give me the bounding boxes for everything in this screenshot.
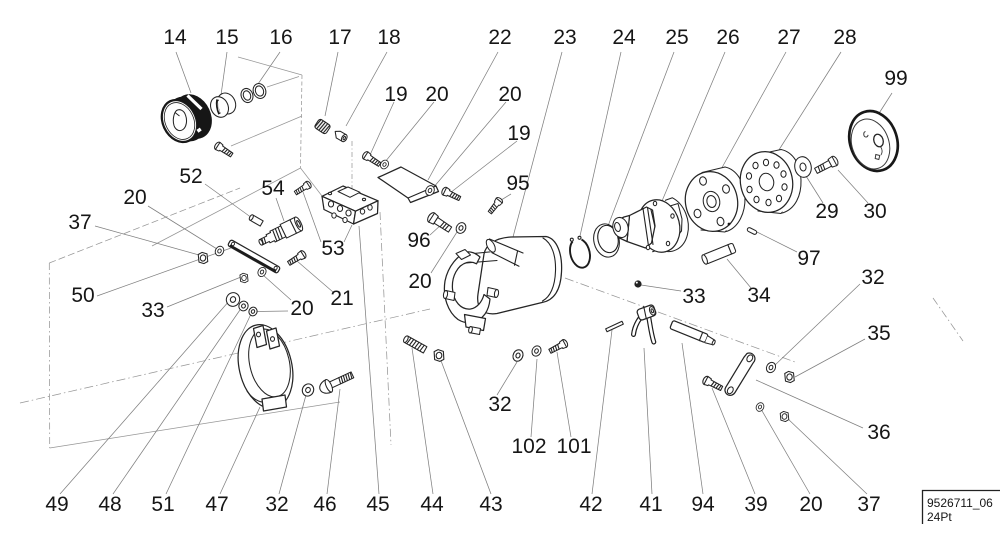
svg-text:32: 32 [861, 266, 884, 289]
svg-text:99: 99 [884, 67, 907, 90]
svg-text:37: 37 [857, 493, 880, 516]
svg-text:23: 23 [553, 26, 576, 49]
svg-text:18: 18 [377, 26, 400, 49]
svg-text:29: 29 [815, 200, 838, 223]
svg-text:54: 54 [261, 177, 285, 200]
svg-text:35: 35 [867, 322, 890, 345]
svg-text:102: 102 [511, 435, 546, 458]
svg-text:37: 37 [68, 211, 91, 234]
svg-text:51: 51 [151, 493, 174, 516]
svg-text:33: 33 [682, 285, 705, 308]
svg-text:26: 26 [716, 26, 739, 49]
svg-text:16: 16 [269, 26, 292, 49]
svg-text:33: 33 [141, 299, 164, 322]
svg-text:44: 44 [420, 493, 444, 516]
svg-text:39: 39 [744, 493, 767, 516]
svg-text:28: 28 [833, 26, 856, 49]
svg-text:49: 49 [45, 493, 68, 516]
svg-text:48: 48 [98, 493, 121, 516]
svg-text:17: 17 [328, 26, 351, 49]
svg-text:20: 20 [425, 83, 448, 106]
svg-text:20: 20 [498, 83, 521, 106]
svg-text:36: 36 [867, 421, 890, 444]
svg-text:53: 53 [321, 237, 344, 260]
svg-text:9526711_06: 9526711_06 [927, 496, 993, 510]
svg-text:19: 19 [507, 122, 530, 145]
svg-text:42: 42 [579, 493, 602, 516]
svg-text:25: 25 [665, 26, 688, 49]
svg-text:94: 94 [691, 493, 715, 516]
svg-text:32: 32 [265, 493, 288, 516]
svg-text:20: 20 [408, 270, 431, 293]
svg-text:27: 27 [777, 26, 800, 49]
svg-text:96: 96 [407, 229, 430, 252]
svg-text:19: 19 [384, 83, 407, 106]
svg-text:43: 43 [479, 493, 502, 516]
svg-text:24: 24 [612, 26, 636, 49]
svg-text:46: 46 [313, 493, 336, 516]
svg-text:22: 22 [488, 26, 511, 49]
svg-text:30: 30 [863, 200, 886, 223]
svg-text:47: 47 [205, 493, 228, 516]
svg-text:34: 34 [747, 284, 771, 307]
svg-text:50: 50 [71, 284, 94, 307]
svg-text:14: 14 [163, 26, 187, 49]
svg-text:20: 20 [123, 186, 146, 209]
svg-text:97: 97 [797, 247, 820, 270]
svg-text:32: 32 [488, 393, 511, 416]
svg-text:20: 20 [290, 297, 313, 320]
svg-text:95: 95 [506, 172, 529, 195]
svg-text:101: 101 [556, 435, 591, 458]
svg-text:24Pt: 24Pt [927, 510, 952, 524]
svg-text:15: 15 [215, 26, 238, 49]
svg-text:41: 41 [639, 493, 662, 516]
svg-text:20: 20 [799, 493, 822, 516]
svg-text:45: 45 [366, 493, 389, 516]
svg-text:21: 21 [330, 287, 353, 310]
svg-text:52: 52 [179, 165, 202, 188]
